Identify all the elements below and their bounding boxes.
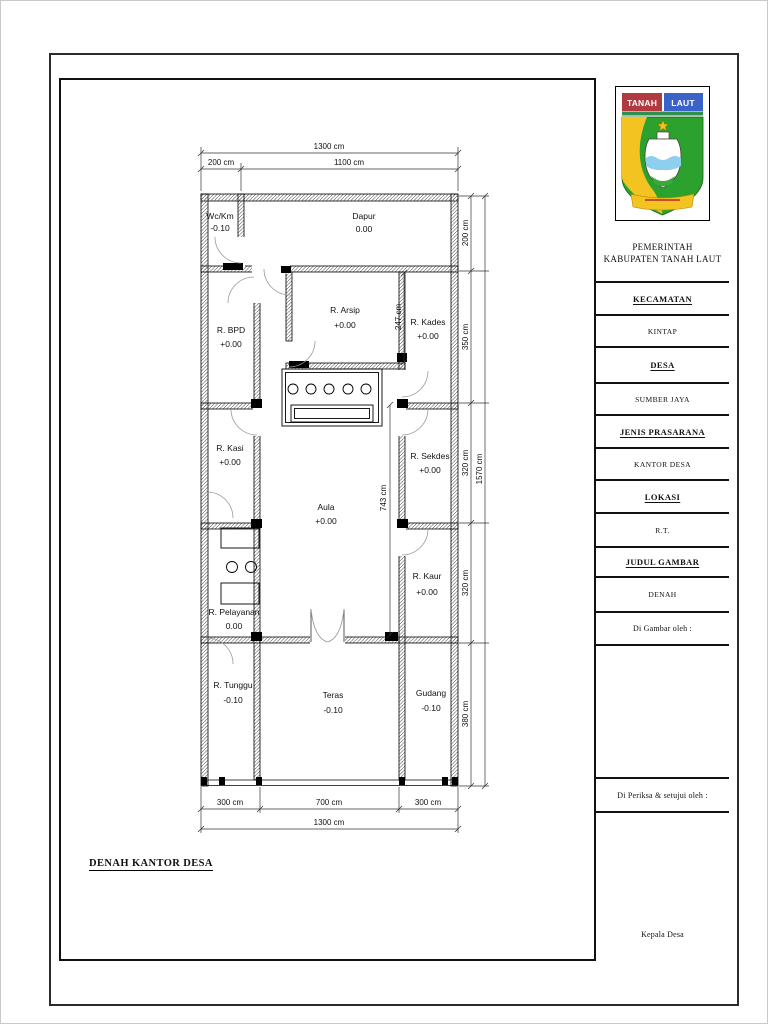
jenis-prasarana-label: JENIS PRASARANA xyxy=(620,427,705,437)
terrace-front-line xyxy=(201,780,458,786)
room-name: R. Tunggu xyxy=(213,680,252,690)
agency-line1: PEMERINTAH xyxy=(604,241,722,253)
room-name: Wc/Km xyxy=(206,211,233,221)
dim-arsip-wall: 247 cm xyxy=(394,304,403,331)
lokasi-value: R.T. xyxy=(655,526,669,535)
room-level: -0.10 xyxy=(323,705,343,715)
room-level: +0.00 xyxy=(419,465,441,475)
room-name: R. Sekdes xyxy=(410,451,449,461)
signature-cell: Kepala Desa xyxy=(596,813,729,961)
room-level: -0.10 xyxy=(223,695,243,705)
room-name: Gudang xyxy=(416,688,447,698)
room-name: R. Arsip xyxy=(330,305,360,315)
room-name: R. Kades xyxy=(411,317,446,327)
lokasi-label: LOKASI xyxy=(645,492,680,502)
room-level: +0.00 xyxy=(416,587,438,597)
room-level: -0.10 xyxy=(210,223,230,233)
title-block-header-cell: TANAH LAUT PEMERINTAH KABUPATEN TANAH LA… xyxy=(596,78,729,283)
room-name: R. Kasi xyxy=(216,443,244,453)
service-counter xyxy=(282,369,382,426)
dim-bottom-right: 300 cm xyxy=(415,798,442,807)
room-level: -0.10 xyxy=(421,703,441,713)
room-name: R. BPD xyxy=(217,325,245,335)
drawing-caption: DENAH KANTOR DESA xyxy=(89,858,213,871)
jenis-label-cell: JENIS PRASARANA xyxy=(596,416,729,449)
desa-value-cell: SUMBER JAYA xyxy=(596,384,729,416)
jenis-value-cell: KANTOR DESA xyxy=(596,449,729,481)
signer-title: Kepala Desa xyxy=(641,930,684,939)
title-block: TANAH LAUT PEMERINTAH KABUPATEN TANAH LA… xyxy=(594,78,729,961)
kecamatan-value-cell: KINTAP xyxy=(596,316,729,348)
dim-top-left: 200 cm xyxy=(208,158,235,167)
dim-bottom-left: 300 cm xyxy=(217,798,244,807)
agency-name: PEMERINTAH KABUPATEN TANAH LAUT xyxy=(604,241,722,265)
logo-text-right: LAUT xyxy=(671,98,695,108)
room-level: +0.00 xyxy=(417,331,439,341)
dim-right-5: 380 cm xyxy=(461,701,470,728)
room-level: +0.00 xyxy=(219,457,241,467)
desa-label: DESA xyxy=(650,360,674,370)
desa-value: SUMBER JAYA xyxy=(635,395,690,404)
room-level: 0.00 xyxy=(356,224,373,234)
room-name: Dapur xyxy=(352,211,375,221)
judul-label-cell: JUDUL GAMBAR xyxy=(596,548,729,578)
dim-right-2: 350 cm xyxy=(461,324,470,351)
drawn-by-label: Di Gambar oleh : xyxy=(633,624,692,633)
kecamatan-value: KINTAP xyxy=(648,327,677,336)
door-openings xyxy=(237,237,406,644)
kecamatan-label: KECAMATAN xyxy=(633,294,692,304)
dimension-labels: 1300 cm 200 cm 1100 cm 200 cm 350 cm 320… xyxy=(208,142,484,827)
jenis-prasarana-value: KANTOR DESA xyxy=(634,460,691,469)
drawn-by-cell: Di Gambar oleh : xyxy=(596,613,729,646)
dim-right-overall: 1570 cm xyxy=(475,453,484,484)
lokasi-label-cell: LOKASI xyxy=(596,481,729,514)
lokasi-value-cell: R.T. xyxy=(596,514,729,548)
dim-bottom-overall: 1300 cm xyxy=(314,818,345,827)
room-name: Teras xyxy=(323,690,344,700)
dim-top-right: 1100 cm xyxy=(334,158,364,167)
room-name: R. Kaur xyxy=(413,571,442,581)
room-name: R. Pelayanan xyxy=(208,607,259,617)
tanah-laut-logo: TANAH LAUT xyxy=(615,86,710,221)
drawn-by-signature-space xyxy=(596,646,729,779)
judul-gambar-value: DENAH xyxy=(648,590,676,599)
kecamatan-label-cell: KECAMATAN xyxy=(596,283,729,316)
judul-gambar-label: JUDUL GAMBAR xyxy=(626,557,700,567)
dim-top-overall: 1300 cm xyxy=(314,142,345,151)
checked-by-cell: Di Periksa & setujui oleh : xyxy=(596,779,729,813)
room-level: +0.00 xyxy=(220,339,242,349)
dim-bottom-mid: 700 cm xyxy=(316,798,343,807)
room-level: 0.00 xyxy=(226,621,243,631)
dim-right-4: 320 cm xyxy=(461,570,470,597)
dim-right-3: 320 cm xyxy=(461,450,470,477)
pelayanan-desk xyxy=(221,528,259,604)
checked-by-label: Di Periksa & setujui oleh : xyxy=(617,791,708,800)
agency-line2: KABUPATEN TANAH LAUT xyxy=(604,253,722,265)
room-level: +0.00 xyxy=(315,516,337,526)
dim-aula-height: 743 cm xyxy=(379,485,388,512)
drawing-sheet: 1300 cm 200 cm 1100 cm 200 cm 350 cm 320… xyxy=(0,0,768,1024)
dim-right-1: 200 cm xyxy=(461,220,470,247)
room-name: Aula xyxy=(317,502,334,512)
floor-plan-drawing: 1300 cm 200 cm 1100 cm 200 cm 350 cm 320… xyxy=(59,78,594,961)
room-level: +0.00 xyxy=(334,320,356,330)
judul-value-cell: DENAH xyxy=(596,578,729,613)
logo-text-left: TANAH xyxy=(627,98,657,108)
desa-label-cell: DESA xyxy=(596,348,729,384)
